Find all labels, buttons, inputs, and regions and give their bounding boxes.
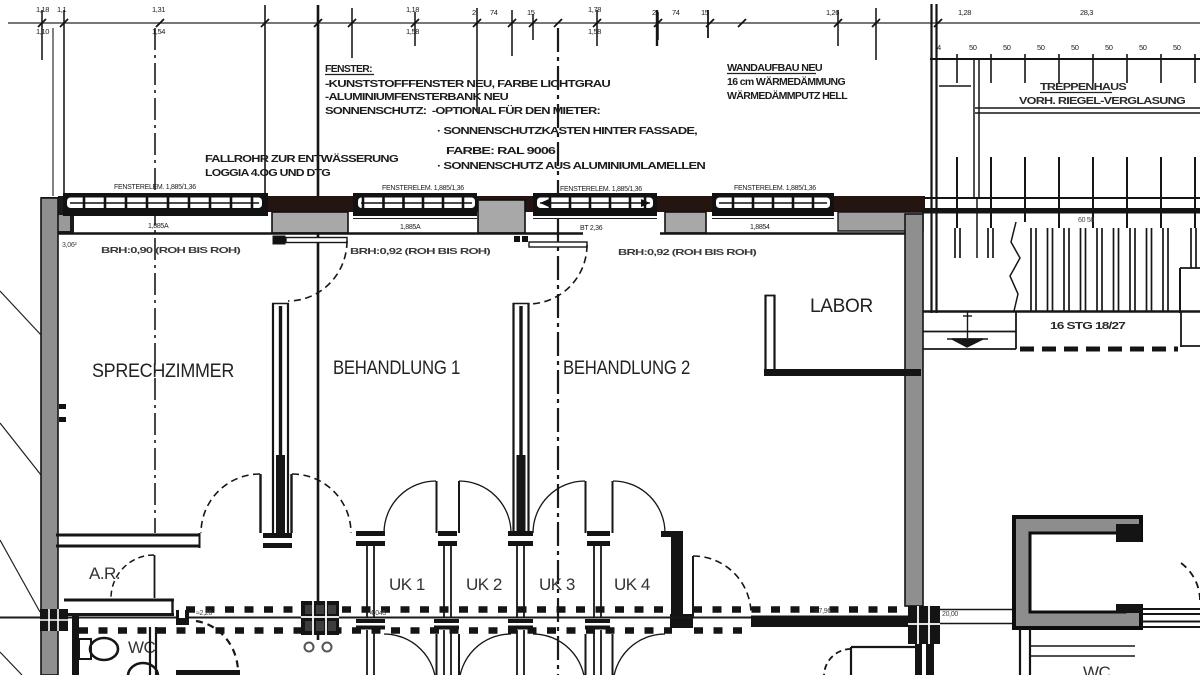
svg-text:4,045: 4,045 — [370, 610, 386, 617]
svg-text:16 STG 18/27: 16 STG 18/27 — [1050, 321, 1126, 332]
svg-text:FENSTERELEM. 1,885/1,36: FENSTERELEM. 1,885/1,36 — [734, 185, 816, 192]
svg-text:UK 2: UK 2 — [466, 575, 502, 594]
svg-text:50: 50 — [969, 43, 977, 52]
svg-text:50: 50 — [1173, 43, 1181, 52]
svg-text:1,26: 1,26 — [826, 8, 839, 17]
svg-text:-KUNSTSTOFFFENSTER NEU, FARBE: -KUNSTSTOFFFENSTER NEU, FARBE LICHTGRAU — [325, 79, 610, 90]
svg-text:UK 4: UK 4 — [614, 575, 650, 594]
svg-text:A.R.: A.R. — [89, 564, 120, 583]
svg-text:1,78: 1,78 — [588, 5, 601, 14]
svg-text:1,31: 1,31 — [152, 5, 165, 14]
svg-text:FENSTERELEM. 1,885/1,36: FENSTERELEM. 1,885/1,36 — [114, 184, 196, 191]
svg-text:1,58: 1,58 — [588, 27, 601, 36]
svg-text:1,885A: 1,885A — [400, 224, 421, 231]
svg-text:FENSTERELEM. 1,885/1,36: FENSTERELEM. 1,885/1,36 — [560, 186, 642, 193]
svg-text:50: 50 — [1105, 43, 1113, 52]
svg-text:BRH:0,90 (ROH BIS ROH): BRH:0,90 (ROH BIS ROH) — [101, 245, 241, 255]
svg-text:3,06²: 3,06² — [62, 242, 77, 249]
svg-text:WC: WC — [128, 638, 156, 657]
svg-text:50: 50 — [1071, 43, 1079, 52]
svg-text:1,18: 1,18 — [36, 5, 49, 14]
svg-text:1,10: 1,10 — [36, 27, 49, 36]
svg-text:SONNENSCHUTZ: -OPTIONAL FÜR D: SONNENSCHUTZ: -OPTIONAL FÜR DEN MIETER: — [325, 104, 600, 117]
svg-text:16 cm WÄRMEDÄMMUNG: 16 cm WÄRMEDÄMMUNG — [727, 75, 846, 88]
svg-text:TREPPENHAUS: TREPPENHAUS — [1040, 82, 1127, 93]
svg-text:LOGGIA 4.OG UND DTG: LOGGIA 4.OG UND DTG — [205, 168, 331, 179]
svg-text:· SONNENSCHUTZKASTEN HINTER FA: · SONNENSCHUTZKASTEN HINTER FASSADE, — [437, 126, 698, 137]
svg-text:FALLROHR ZUR ENTWÄSSERUNG: FALLROHR ZUR ENTWÄSSERUNG — [205, 152, 399, 165]
svg-text:60 58: 60 58 — [1078, 217, 1094, 224]
svg-text:15: 15 — [527, 8, 535, 17]
svg-text:2: 2 — [652, 8, 656, 17]
svg-text:50: 50 — [1139, 43, 1147, 52]
svg-text:WANDAUFBAU NEU: WANDAUFBAU NEU — [727, 63, 822, 74]
svg-text:-ALUMINIUMFENSTERBANK NEU: -ALUMINIUMFENSTERBANK NEU — [325, 92, 508, 103]
svg-text:BEHANDLUNG 2: BEHANDLUNG 2 — [563, 358, 690, 379]
svg-text:2: 2 — [472, 8, 476, 17]
svg-text:VORH. RIEGEL-VERGLASUNG: VORH. RIEGEL-VERGLASUNG — [1019, 96, 1186, 107]
svg-text:BRH:0,92 (ROH BIS ROH): BRH:0,92 (ROH BIS ROH) — [350, 246, 491, 256]
svg-text:≈2,26: ≈2,26 — [196, 610, 212, 617]
svg-text:1,58: 1,58 — [406, 27, 419, 36]
svg-text:50: 50 — [1037, 43, 1045, 52]
svg-text:UK 3: UK 3 — [539, 575, 575, 594]
svg-text:WÄRMEDÄMMPUTZ HELL: WÄRMEDÄMMPUTZ HELL — [727, 89, 848, 102]
svg-text:WC: WC — [1083, 663, 1111, 675]
svg-text:BEHANDLUNG 1: BEHANDLUNG 1 — [333, 358, 460, 379]
svg-text:BRH:0,92 (ROH BIS ROH): BRH:0,92 (ROH BIS ROH) — [618, 247, 757, 257]
svg-text:SPRECHZIMMER: SPRECHZIMMER — [92, 361, 234, 382]
svg-text:28,3: 28,3 — [1080, 8, 1093, 17]
svg-text:1,28: 1,28 — [958, 8, 971, 17]
svg-text:LABOR: LABOR — [810, 296, 873, 317]
svg-text:74: 74 — [490, 8, 498, 17]
svg-text:BT 2,36: BT 2,36 — [580, 225, 603, 232]
svg-text:FARBE: RAL 9006: FARBE: RAL 9006 — [446, 146, 556, 157]
svg-text:· SONNENSCHUTZ AUS ALUMINIUMLA: · SONNENSCHUTZ AUS ALUMINIUMLAMELLEN — [437, 161, 705, 172]
svg-text:1,885A: 1,885A — [148, 223, 169, 230]
svg-text:50: 50 — [1003, 43, 1011, 52]
svg-text:FENSTERELEM. 1,885/1,36: FENSTERELEM. 1,885/1,36 — [382, 185, 464, 192]
svg-text:1,18: 1,18 — [406, 5, 419, 14]
svg-text:≈7,96: ≈7,96 — [815, 608, 831, 615]
svg-text:UK 1: UK 1 — [389, 575, 425, 594]
svg-text:1,54: 1,54 — [152, 27, 165, 36]
svg-text:20,00: 20,00 — [942, 611, 958, 618]
svg-text:FENSTER:: FENSTER: — [325, 64, 372, 75]
svg-text:1,8854: 1,8854 — [750, 224, 770, 231]
svg-text:1,1: 1,1 — [57, 5, 66, 14]
svg-text:74: 74 — [672, 8, 680, 17]
